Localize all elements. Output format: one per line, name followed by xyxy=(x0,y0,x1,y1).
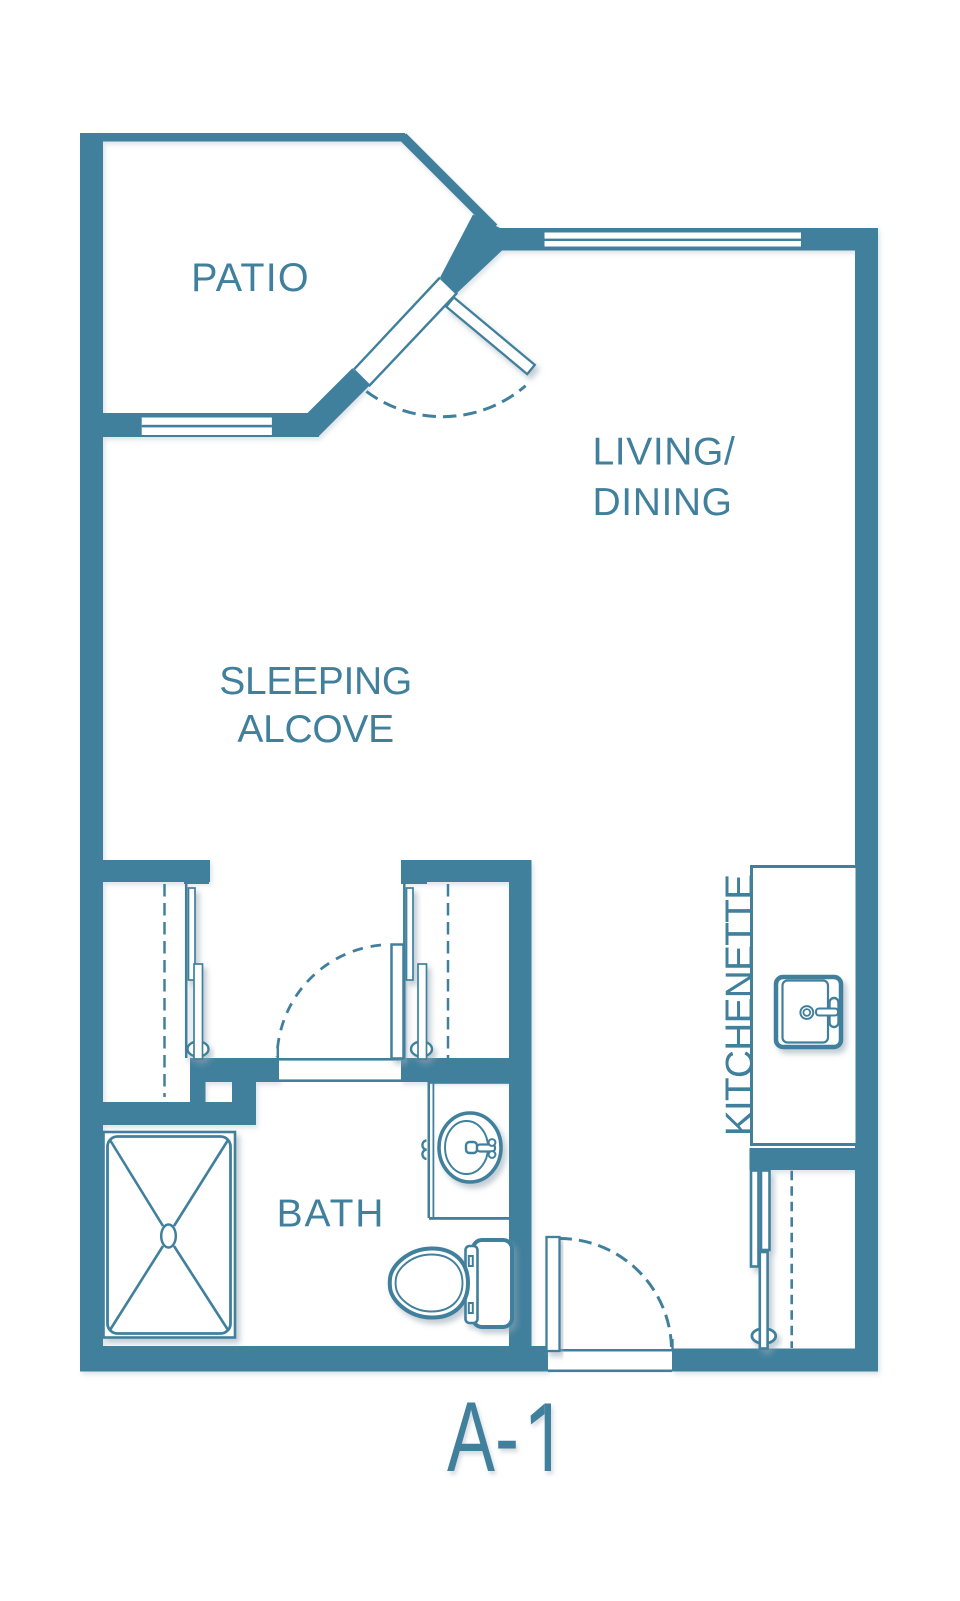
svg-text:A-: A- xyxy=(447,1381,519,1492)
svg-text:DINING: DINING xyxy=(593,481,733,524)
svg-text:ALCOVE: ALCOVE xyxy=(237,708,393,751)
svg-text:BATH: BATH xyxy=(277,1193,386,1236)
svg-text:LIVING/: LIVING/ xyxy=(593,431,736,474)
svg-text:SLEEPING: SLEEPING xyxy=(219,660,412,703)
svg-text:KITCHENETTE: KITCHENETTE xyxy=(719,875,762,1137)
svg-text:PATIO: PATIO xyxy=(191,256,310,300)
